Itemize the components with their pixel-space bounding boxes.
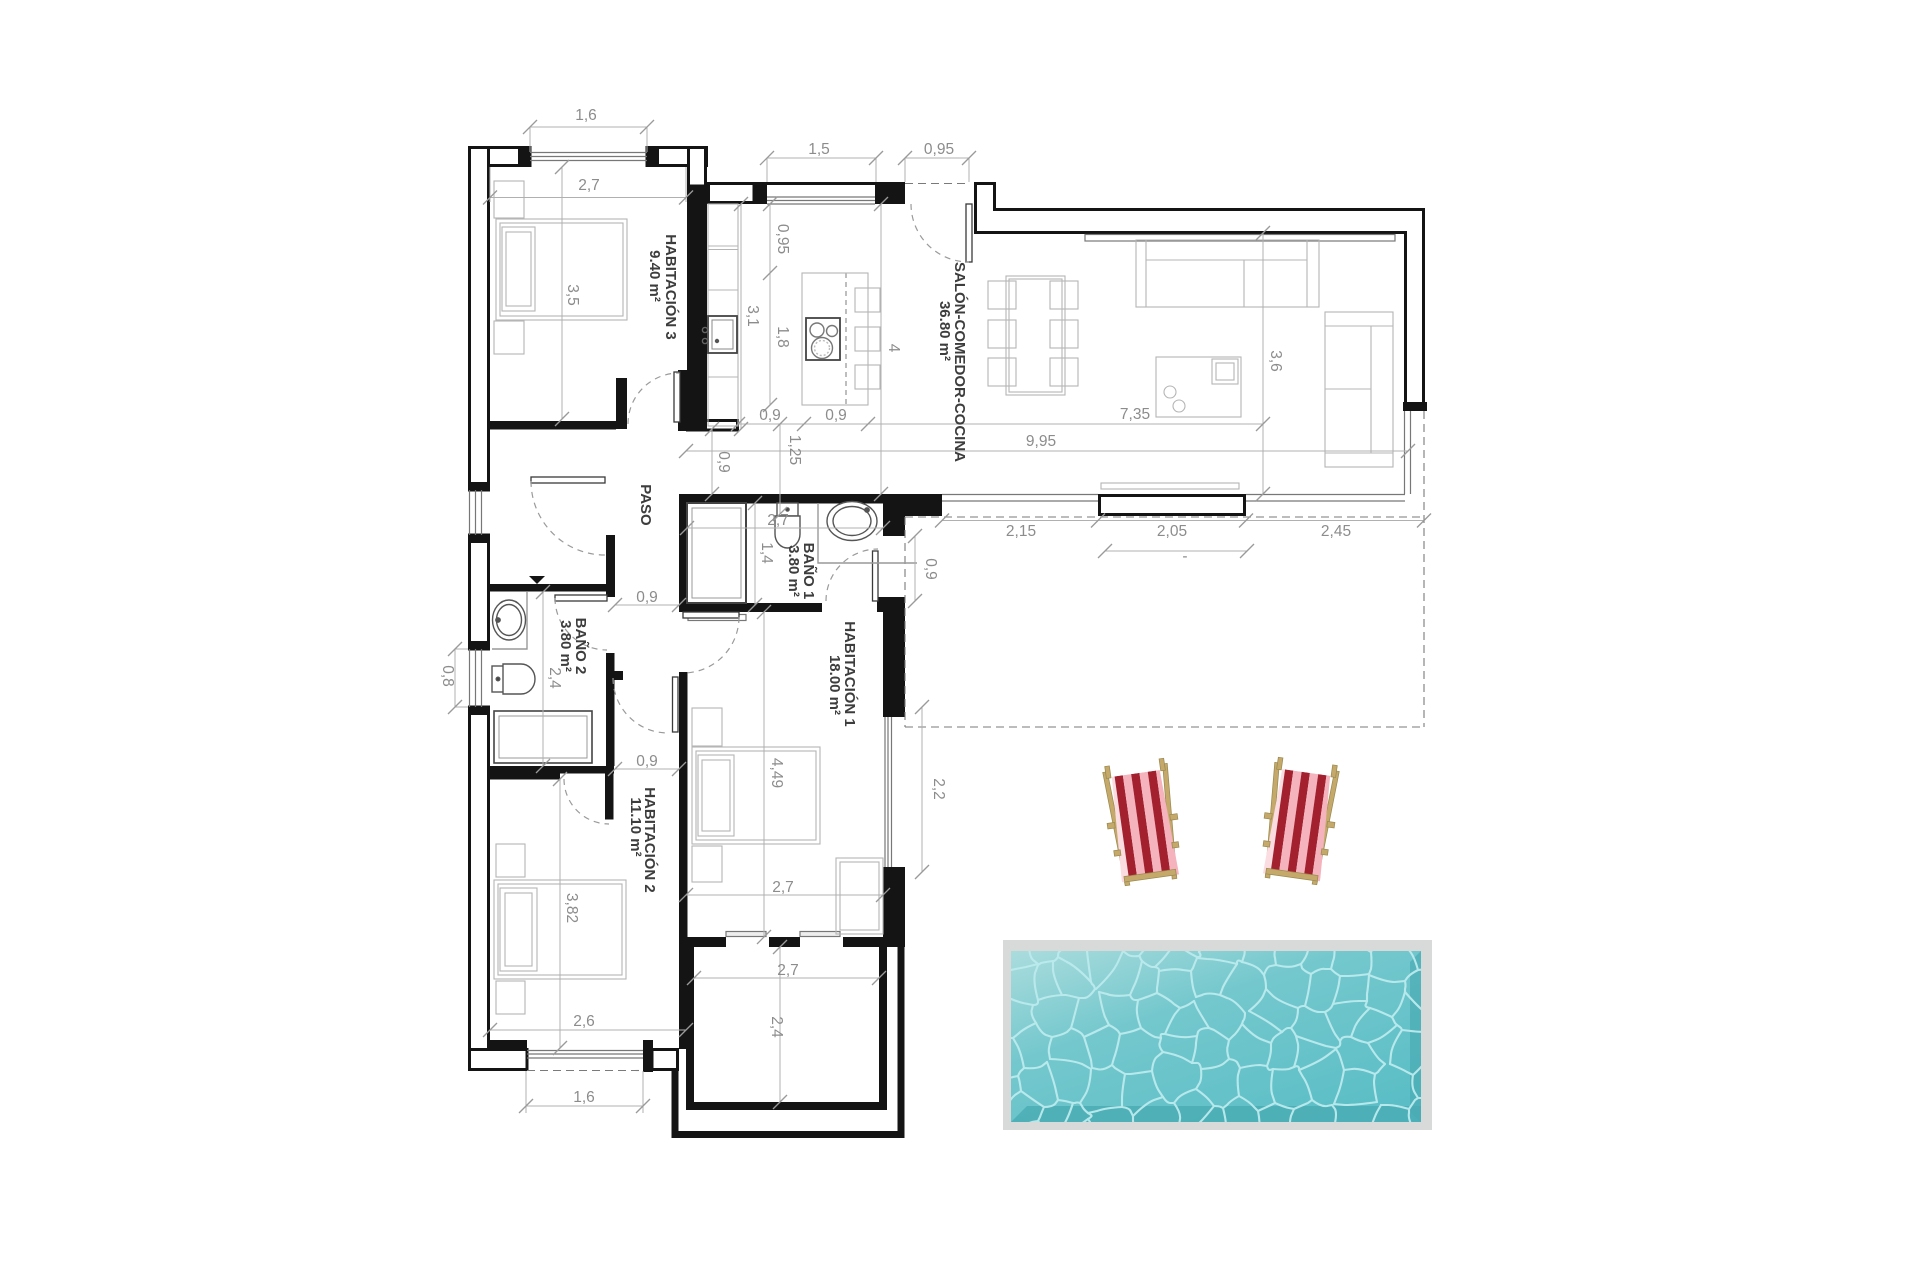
svg-text:0,9: 0,9	[825, 407, 847, 424]
svg-text:4,49: 4,49	[768, 758, 785, 788]
svg-text:1,6: 1,6	[575, 107, 597, 124]
svg-text:3.80 m²: 3.80 m²	[557, 620, 574, 672]
svg-text:7,35: 7,35	[1120, 406, 1150, 423]
svg-text:1,25: 1,25	[786, 435, 803, 465]
svg-text:1,6: 1,6	[573, 1089, 595, 1106]
svg-text:11.10 m²: 11.10 m²	[627, 797, 644, 856]
svg-text:4: 4	[885, 344, 902, 353]
svg-text:3,5: 3,5	[564, 284, 581, 306]
svg-text:-: -	[1182, 548, 1187, 565]
svg-text:1,5: 1,5	[808, 141, 830, 158]
svg-text:3.80 m²: 3.80 m²	[785, 545, 802, 597]
svg-text:2,7: 2,7	[578, 177, 600, 194]
svg-text:1,4: 1,4	[758, 542, 775, 564]
svg-text:2,15: 2,15	[1006, 523, 1036, 540]
svg-text:2,7: 2,7	[777, 962, 799, 979]
svg-text:2,45: 2,45	[1321, 523, 1351, 540]
svg-text:0,9: 0,9	[759, 407, 781, 424]
svg-text:2,2: 2,2	[930, 778, 947, 800]
svg-text:2,05: 2,05	[1157, 523, 1187, 540]
svg-text:3,6: 3,6	[1267, 350, 1284, 372]
svg-text:1,8: 1,8	[774, 326, 791, 348]
svg-text:0,9: 0,9	[636, 589, 658, 606]
svg-text:0,9: 0,9	[715, 451, 732, 473]
svg-text:3,1: 3,1	[744, 305, 761, 327]
svg-text:2,7: 2,7	[772, 879, 794, 896]
svg-text:36.80 m²: 36.80 m²	[936, 301, 953, 361]
svg-text:18.00 m²: 18.00 m²	[826, 655, 843, 715]
svg-text:0,95: 0,95	[924, 141, 954, 158]
svg-text:2,4: 2,4	[768, 1016, 785, 1038]
svg-text:0,9: 0,9	[922, 558, 939, 580]
svg-text:0,9: 0,9	[636, 753, 658, 770]
svg-text:0,8: 0,8	[439, 665, 456, 687]
svg-text:9.40 m²: 9.40 m²	[646, 250, 663, 302]
svg-text:HABITACIÓN 3: HABITACIÓN 3	[662, 234, 680, 340]
svg-text:PASO: PASO	[637, 484, 654, 526]
svg-text:2,6: 2,6	[573, 1013, 595, 1030]
svg-text:0,95: 0,95	[774, 224, 791, 254]
svg-text:2,7: 2,7	[767, 512, 789, 529]
svg-text:9,95: 9,95	[1026, 433, 1056, 450]
svg-text:3,82: 3,82	[563, 893, 580, 923]
svg-text:SALÓN-COMEDOR-COCINA: SALÓN-COMEDOR-COCINA	[951, 262, 969, 462]
